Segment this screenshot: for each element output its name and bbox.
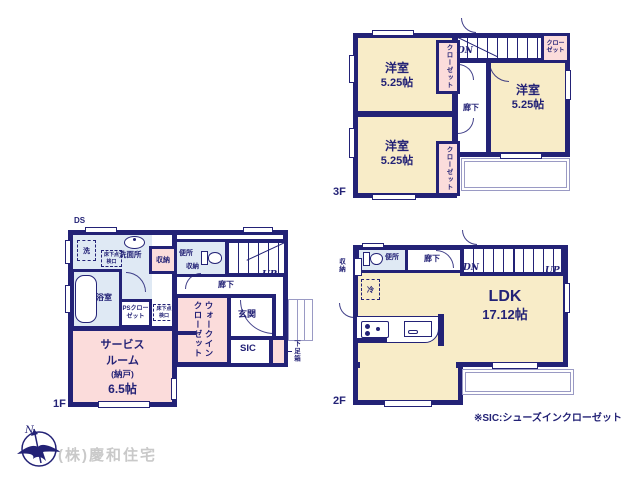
porch-step-line-2 bbox=[304, 300, 305, 340]
ps-closet-label: PSクローゼット bbox=[123, 306, 149, 321]
bathroom-label: 浴室 bbox=[96, 293, 112, 302]
balcony-2f bbox=[462, 369, 574, 395]
sic-label: SIC bbox=[240, 344, 256, 355]
toilet-1f-bowl-icon bbox=[208, 252, 222, 264]
window-3f-bottom-east bbox=[500, 153, 542, 159]
walkin-closet-partition bbox=[174, 331, 196, 335]
sic-note: ※SIC:シューズインクローゼット bbox=[474, 413, 622, 425]
storage-hall-1f: 収納 bbox=[149, 246, 177, 274]
window-3f-bottom-west bbox=[372, 194, 416, 200]
window-2f-right bbox=[564, 283, 570, 313]
toilet-2f-icon bbox=[363, 252, 370, 266]
toilet-1f-tank-icon bbox=[201, 251, 208, 265]
toilet-storage-label: 収納 bbox=[186, 263, 199, 270]
closet-3f-northeast-label: クローゼット bbox=[544, 41, 567, 55]
shoebox-leader-line bbox=[284, 351, 292, 352]
floor-label-1f: 1F bbox=[53, 398, 66, 411]
window-2f-bottom bbox=[384, 400, 432, 407]
bathtub-icon bbox=[75, 275, 97, 323]
window-3f-top bbox=[372, 30, 414, 36]
window-2f-toilet bbox=[362, 243, 384, 248]
toilet-1f-label: 便所 bbox=[179, 250, 193, 258]
storage-2f-niche bbox=[354, 258, 362, 276]
room-3f-east-label: 洋室5.25帖 bbox=[488, 84, 568, 112]
floor-label-2f: 2F bbox=[333, 395, 346, 408]
stove-burner-2 bbox=[365, 331, 370, 336]
ds-label: DS bbox=[74, 216, 85, 225]
kitchen-faucet-icon bbox=[408, 330, 418, 334]
floor-label-3f: 3F bbox=[333, 186, 346, 199]
kitchen-wall-stub-right bbox=[438, 314, 444, 346]
walkin-closet-label: ウォークインクローゼット bbox=[192, 301, 214, 359]
window-1f-left-bath bbox=[65, 285, 71, 313]
stairs-2f-up-label: UP bbox=[545, 266, 560, 276]
floor-hatch-1f-b-label: 床下点検口 bbox=[156, 306, 173, 319]
hallway-1f-label: 廊下 bbox=[218, 280, 234, 289]
shoebox-label: 下足箱 bbox=[292, 340, 299, 368]
floorplan-canvas: クローゼット クローゼット クローゼット 洋室5.25帖 洋室5.25帖 洋室5… bbox=[0, 0, 640, 480]
hallway-3f-label: 廊下 bbox=[463, 103, 479, 112]
window-1f-service-right bbox=[171, 378, 177, 400]
storage-2f-label: 収納 bbox=[337, 258, 344, 282]
service-room-label-3: (納戸) bbox=[111, 368, 134, 380]
stove-burner-3 bbox=[376, 327, 380, 331]
porch-step-line-1 bbox=[297, 300, 298, 340]
compass-north-label: N bbox=[24, 425, 35, 436]
hallway-2f-label: 廊下 bbox=[424, 254, 440, 263]
stairs-2f-dn-label: DN bbox=[463, 263, 479, 273]
window-1f-top-west bbox=[85, 227, 117, 233]
storage-hall-1f-label: 収納 bbox=[156, 255, 170, 265]
kitchen-sink-icon bbox=[404, 321, 432, 337]
entrance-porch bbox=[288, 299, 313, 341]
walkin-closet-1f: ウォークインクローゼット bbox=[174, 294, 232, 366]
washer-1f: 洗 bbox=[77, 240, 96, 261]
ldk-label: LDK17.12帖 bbox=[450, 288, 560, 325]
ps-closet-1f: PSクローゼット bbox=[119, 299, 152, 328]
stairs-1f-up-label: UP bbox=[262, 270, 277, 280]
sink-faucet-icon bbox=[133, 238, 136, 241]
floor-hatch-1f-b: 床下点検口 bbox=[153, 304, 175, 321]
room-3f-northwest-label: 洋室5.25帖 bbox=[355, 62, 439, 90]
stairs-3f-dn-label: DN bbox=[457, 46, 473, 56]
washer-1f-label: 洗 bbox=[83, 246, 90, 256]
service-room-1f: サービス ルーム (納戸) 6.5帖 bbox=[68, 326, 177, 407]
fridge-2f-label: 冷 bbox=[367, 285, 374, 295]
kitchen-wall-stub-left bbox=[356, 338, 387, 343]
balcony-3f bbox=[461, 158, 570, 191]
washroom-label: 洗面所 bbox=[119, 251, 142, 260]
service-room-label-2: ルーム bbox=[106, 352, 139, 368]
service-room-size: 6.5帖 bbox=[108, 380, 137, 397]
closet-3f-northwest-label: クローゼット bbox=[443, 44, 453, 90]
floor-hatch-1f-a-label: 床下点検口 bbox=[103, 252, 120, 265]
company-name: (株)慶和住宅 bbox=[58, 447, 157, 464]
room-3f-southwest-label: 洋室5.25帖 bbox=[355, 140, 439, 168]
fridge-2f: 冷 bbox=[361, 279, 380, 300]
closet-3f-southwest-label: クローゼット bbox=[443, 146, 453, 192]
window-1f-top-east bbox=[243, 227, 273, 233]
stairs-2f-divider bbox=[514, 247, 515, 274]
door-arc-2f-exterior-left bbox=[339, 303, 354, 318]
door-arc-3f-roof bbox=[461, 18, 476, 33]
door-arc-2f-landing bbox=[462, 230, 477, 245]
window-2f-balcony bbox=[492, 362, 538, 369]
ldk-2f-seam-patch bbox=[360, 360, 456, 373]
closet-3f-southwest: クローゼット bbox=[436, 141, 460, 196]
toilet-2f-label: 便所 bbox=[385, 254, 399, 262]
service-room-label-1: サービス bbox=[101, 336, 145, 352]
window-1f-bottom bbox=[98, 401, 150, 408]
stove-burner-1 bbox=[365, 324, 370, 329]
closet-3f-northeast: クローゼット bbox=[541, 33, 570, 63]
window-1f-left-upper bbox=[65, 240, 71, 264]
balcony-2f-inner-line bbox=[465, 372, 571, 392]
entrance-label: 玄関 bbox=[238, 309, 256, 319]
balcony-3f-inner-line bbox=[464, 161, 567, 188]
